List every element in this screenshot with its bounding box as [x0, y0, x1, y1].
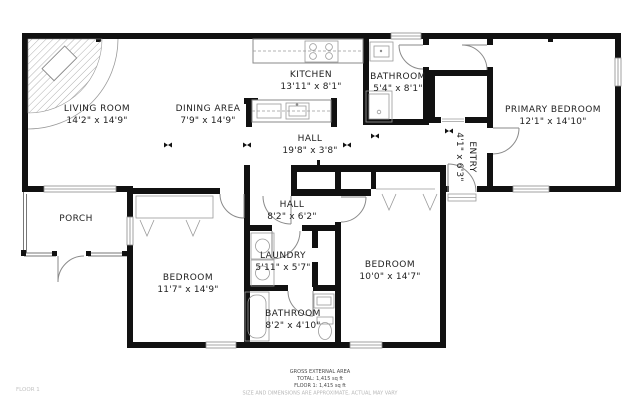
- footer-floor: FLOOR 1: 1,415 sq ft: [294, 383, 346, 389]
- window: [127, 217, 133, 245]
- svg-text:5'4" x 8'1": 5'4" x 8'1": [373, 84, 422, 94]
- svg-text:DINING AREA: DINING AREA: [176, 104, 241, 114]
- door-arc: [341, 197, 366, 222]
- room-entry: ENTRY 4'1" x 6'3": [454, 132, 477, 181]
- room-bedroom-right: BEDROOM 10'0" x 14'7": [359, 260, 420, 282]
- door-arc: [220, 194, 244, 218]
- svg-text:10'0" x 14'7": 10'0" x 14'7": [359, 272, 420, 282]
- kitchen-counter: [253, 39, 363, 63]
- footer-area-summary: GROSS EXTERNAL AREA TOTAL: 1,415 sq ft F…: [243, 369, 399, 397]
- svg-text:BATHROOM: BATHROOM: [370, 72, 426, 82]
- porch-rails: [21, 192, 127, 256]
- closet-bed-left: [136, 196, 213, 236]
- kitchen-peninsula: [252, 100, 331, 122]
- svg-text:LIVING ROOM: LIVING ROOM: [64, 104, 130, 114]
- svg-text:LAUNDRY: LAUNDRY: [260, 251, 306, 261]
- svg-text:13'11" x 8'1": 13'11" x 8'1": [280, 82, 341, 92]
- svg-text:19'8" x 3'8": 19'8" x 3'8": [282, 146, 337, 156]
- sink-icon: [314, 294, 334, 308]
- door-arc: [462, 45, 487, 70]
- room-living-room: LIVING ROOM 14'2" x 14'9": [64, 104, 130, 126]
- svg-text:BATHROOM: BATHROOM: [265, 309, 321, 319]
- svg-text:4'1" x 6'3": 4'1" x 6'3": [454, 132, 464, 181]
- room-bathroom-bottom: BATHROOM 8'2" x 4'10": [265, 309, 321, 331]
- closet-bed-right: [376, 189, 437, 210]
- room-primary-bedroom: PRIMARY BEDROOM 12'1" x 14'10": [505, 105, 601, 127]
- window: [44, 186, 116, 192]
- svg-text:HALL: HALL: [298, 134, 323, 144]
- footer-area-title: GROSS EXTERNAL AREA: [290, 369, 351, 375]
- hall-closet-bifold: [442, 119, 464, 122]
- door-arc: [399, 45, 423, 69]
- room-hall-small: HALL 8'2" x 6'2": [267, 200, 316, 222]
- room-kitchen: KITCHEN 13'11" x 8'1": [280, 70, 341, 92]
- room-bedroom-left: BEDROOM 11'7" x 14'9": [157, 273, 218, 295]
- room-bathroom-top: BATHROOM 5'4" x 8'1": [370, 72, 426, 94]
- door-arc: [493, 128, 519, 154]
- svg-text:HALL: HALL: [280, 200, 305, 210]
- room-laundry: LAUNDRY 5'11" x 5'7": [255, 251, 310, 273]
- floor-plan: LIVING ROOM 14'2" x 14'9" DINING AREA 7'…: [0, 0, 640, 400]
- footer-total: TOTAL: 1,415 sq ft: [296, 376, 343, 382]
- porch-door-arc: [58, 256, 84, 282]
- svg-text:8'2" x 4'10": 8'2" x 4'10": [265, 321, 320, 331]
- svg-text:14'2" x 14'9": 14'2" x 14'9": [66, 116, 127, 126]
- footer-disclaimer: SIZE AND DIMENSIONS ARE APPROXIMATE, ACT…: [243, 391, 399, 397]
- sink-icon: [370, 42, 393, 61]
- svg-text:BEDROOM: BEDROOM: [365, 260, 415, 270]
- svg-text:KITCHEN: KITCHEN: [290, 70, 332, 80]
- svg-text:7'9" x 14'9": 7'9" x 14'9": [180, 116, 235, 126]
- svg-text:ENTRY: ENTRY: [467, 141, 477, 172]
- svg-text:11'7" x 14'9": 11'7" x 14'9": [157, 285, 218, 295]
- shower-icon: [366, 91, 392, 122]
- svg-text:8'2" x 6'2": 8'2" x 6'2": [267, 212, 316, 222]
- svg-text:BEDROOM: BEDROOM: [163, 273, 213, 283]
- window: [513, 186, 549, 192]
- window: [615, 58, 621, 86]
- room-porch: PORCH: [59, 214, 93, 224]
- window: [391, 33, 421, 39]
- room-dining-area: DINING AREA 7'9" x 14'9": [176, 104, 241, 126]
- bathroom-top-fixtures: [366, 42, 393, 122]
- svg-text:5'11" x 5'7": 5'11" x 5'7": [255, 263, 310, 273]
- window: [350, 342, 382, 348]
- window: [206, 342, 236, 348]
- floor-label: FLOOR 1: [16, 387, 40, 393]
- svg-text:PRIMARY BEDROOM: PRIMARY BEDROOM: [505, 105, 601, 115]
- svg-text:PORCH: PORCH: [59, 214, 93, 224]
- floor-plan-canvas: LIVING ROOM 14'2" x 14'9" DINING AREA 7'…: [0, 0, 640, 400]
- entry-stoop: [448, 194, 476, 201]
- svg-text:12'1" x 14'10": 12'1" x 14'10": [519, 117, 586, 127]
- room-hall-main: HALL 19'8" x 3'8": [282, 134, 337, 156]
